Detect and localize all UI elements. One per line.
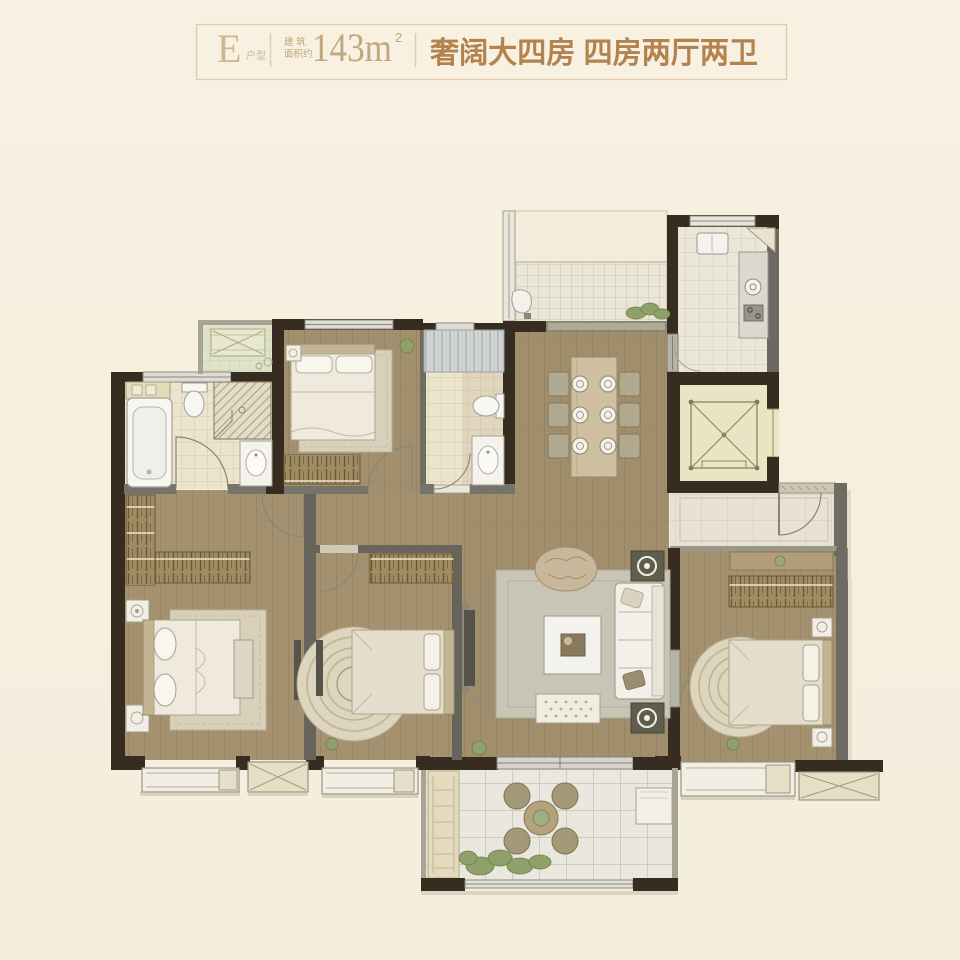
svg-text:奢阔大四房 四房两厅两卫: 奢阔大四房 四房两厅两卫 <box>430 37 758 70</box>
svg-text:面积约: 面积约 <box>284 48 313 60</box>
svg-text:2: 2 <box>395 30 402 45</box>
svg-text:建 筑: 建 筑 <box>284 36 306 48</box>
svg-text:户型: 户型 <box>246 49 266 62</box>
svg-text:E: E <box>217 26 241 71</box>
svg-text:143m: 143m <box>312 25 392 70</box>
